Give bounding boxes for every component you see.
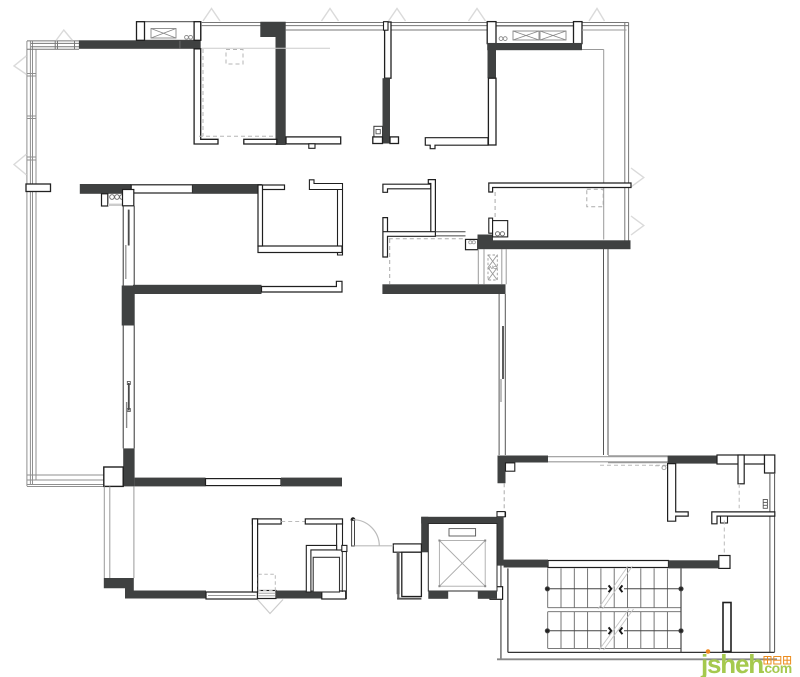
svg-text:A/C: A/C [489, 265, 497, 270]
